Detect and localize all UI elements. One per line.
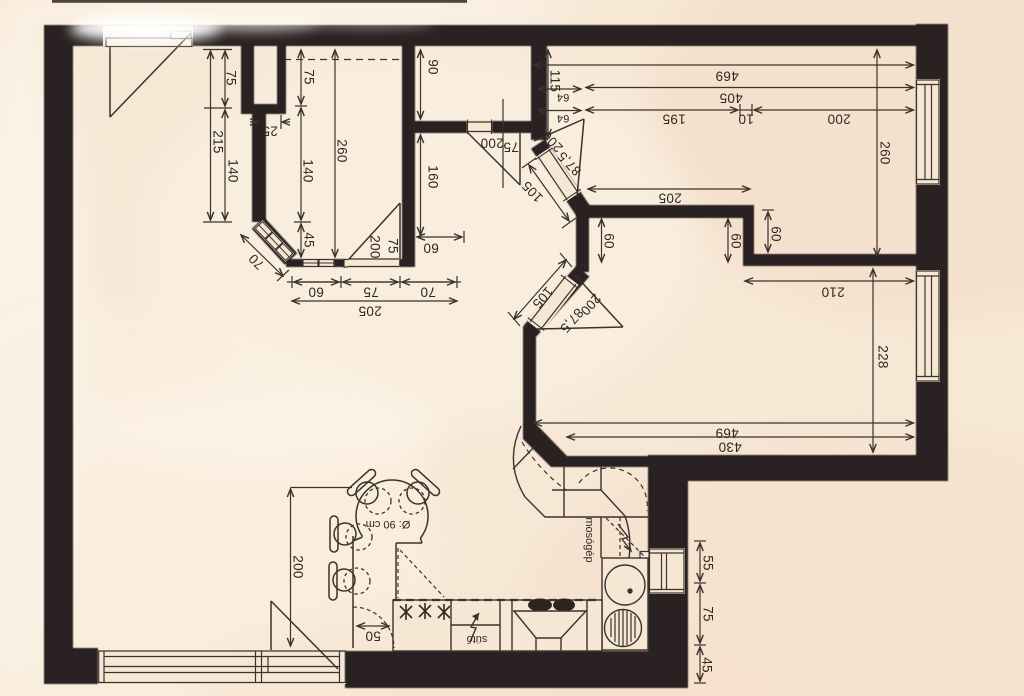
- svg-text:469: 469: [715, 425, 738, 440]
- svg-text:260: 260: [877, 141, 892, 164]
- svg-text:228: 228: [875, 345, 890, 368]
- svg-text:90: 90: [425, 59, 440, 75]
- svg-text:Ø: 90 cm: Ø: 90 cm: [366, 518, 411, 530]
- svg-text:140: 140: [300, 159, 315, 182]
- svg-text:215: 215: [210, 130, 225, 153]
- svg-text:405: 405: [719, 90, 742, 105]
- svg-text:75: 75: [503, 139, 519, 154]
- svg-text:210: 210: [821, 284, 844, 299]
- svg-text:200: 200: [480, 135, 503, 150]
- svg-text:25: 25: [262, 123, 278, 138]
- svg-text:60: 60: [308, 284, 324, 299]
- svg-text:469: 469: [715, 68, 738, 83]
- svg-text:205: 205: [658, 190, 681, 205]
- svg-text:75: 75: [223, 70, 238, 86]
- svg-text:70: 70: [420, 284, 436, 299]
- svg-text:45: 45: [301, 232, 316, 248]
- svg-text:115: 115: [547, 70, 562, 92]
- svg-text:55: 55: [700, 555, 715, 571]
- svg-text:200: 200: [367, 235, 382, 258]
- svg-text:140: 140: [225, 159, 240, 182]
- svg-text:mosógép: mosógép: [583, 517, 595, 562]
- svg-text:75: 75: [363, 284, 379, 299]
- svg-text:64: 64: [557, 91, 570, 103]
- svg-text:75: 75: [700, 606, 715, 622]
- svg-text:200: 200: [827, 111, 850, 126]
- svg-text:160: 160: [425, 165, 440, 188]
- svg-text:60: 60: [768, 226, 783, 242]
- svg-text:75: 75: [385, 238, 400, 254]
- svg-text:260: 260: [334, 139, 349, 162]
- svg-text:10: 10: [738, 111, 754, 126]
- svg-text:60: 60: [728, 233, 743, 249]
- svg-text:60: 60: [601, 233, 616, 249]
- svg-text:50: 50: [365, 628, 381, 643]
- svg-text:205: 205: [358, 303, 381, 318]
- svg-text:60: 60: [423, 240, 439, 255]
- svg-text:200: 200: [290, 555, 305, 578]
- svg-text:64: 64: [557, 112, 570, 124]
- svg-text:195: 195: [662, 111, 685, 126]
- svg-text:430: 430: [718, 439, 741, 454]
- svg-text:sütő: sütő: [467, 633, 488, 645]
- svg-text:75: 75: [301, 69, 316, 85]
- svg-text:45: 45: [699, 657, 714, 673]
